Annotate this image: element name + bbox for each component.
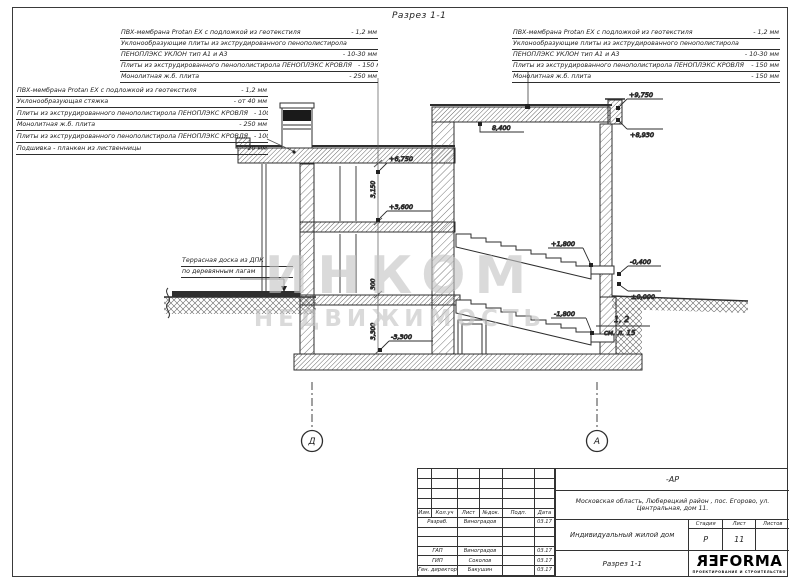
spec-block-top-right: ПВХ-мембрана Protan EX с подложкой из ге… — [512, 28, 780, 83]
terrace-deck — [172, 291, 300, 297]
spec-line: ПВХ-мембрана Protan EX с подложкой из ге… — [121, 28, 301, 38]
spec-block-top-left: ПВХ-мембрана Protan EX с подложкой из ге… — [120, 28, 378, 83]
row-date: 03.17 — [535, 547, 555, 557]
elev-parapet-top: +9,750 — [629, 91, 653, 99]
row-name: Бакушин — [458, 566, 503, 576]
row-role: ГАП — [418, 547, 458, 557]
stair-ref-number: 1, 2 — [614, 315, 629, 324]
stair-ref-sheet: см. л. 15 — [604, 329, 636, 337]
row-name: Соколов — [458, 556, 503, 566]
col-izm: Изм. — [418, 509, 432, 518]
right-roof-slab — [432, 107, 610, 122]
terrace-note-line2: по деревянным лагам — [181, 267, 293, 278]
elev-ceiling-right: 8,400 — [492, 124, 511, 132]
mark-roof-top: +8,930 — [616, 118, 663, 139]
terrace-note: Террасная доска из ДПК по деревянным лаг… — [181, 256, 293, 278]
stage-label: Стадия — [689, 520, 723, 528]
drawing-sheet: +6,750 +3,600 -3,300 8,400 +9,750 — [0, 0, 800, 584]
terrace-note-line1: Террасная доска из ДПК — [181, 256, 293, 267]
sheets-label: Листов — [756, 520, 789, 528]
elev-basement: -3,300 — [391, 333, 412, 341]
spec-line: ПЕНОПЛЭКС УКЛОН тип А1 и А3 — [513, 50, 619, 60]
elev-floor2: +3,600 — [389, 203, 413, 211]
stage-table: Стадия Лист Листов Р 11 — [689, 520, 789, 550]
spec-line: ПЕНОПЛЭКС УКЛОН тип А1 и А3 — [121, 50, 227, 60]
mark-floor2: +3,600 — [376, 203, 431, 222]
title-block-main: -АР Московская область, Люберецкий район… — [555, 469, 789, 576]
ground-slab — [300, 295, 460, 305]
stair-lower — [456, 300, 614, 345]
sheet-value: 11 — [723, 529, 757, 550]
row-name: Виноградов — [458, 518, 503, 528]
spec-line: ПВХ-мембрана Protan EX с подложкой из ге… — [17, 86, 197, 96]
title-block: Изм. Кол.уч Лист №док. Подп. Дата Разраб… — [417, 468, 788, 577]
mark-ceiling-right: 8,400 — [478, 122, 524, 132]
drawing-title: Разрез 1-1 — [392, 11, 446, 21]
building-structure — [236, 99, 642, 370]
row-date: 03.17 — [535, 556, 555, 566]
spec-line: ПВХ-мембрана Protan EX с подложкой из ге… — [513, 28, 693, 38]
project-code: -АР — [556, 469, 789, 491]
col-podp: Подп. — [503, 509, 535, 518]
row-date: 03.17 — [535, 566, 555, 576]
spec-line: Плиты из экструдированного пенополистиро… — [513, 61, 744, 71]
dim-floor2-height: 3,150 — [370, 181, 377, 198]
stair-upper — [456, 234, 614, 279]
mark-basement-floor: -3,300 — [378, 333, 433, 352]
elev-grade: -0,400 — [630, 258, 651, 266]
elev-landing-up: +1,800 — [551, 240, 575, 248]
spec-line: Плиты из экструдированного пенополистиро… — [17, 132, 248, 142]
stage-value: Р — [689, 529, 723, 550]
axis-label-left: Д — [307, 437, 315, 447]
terrain-left — [164, 288, 316, 318]
col-data: Дата — [535, 509, 555, 518]
chimney — [280, 103, 314, 148]
logo-text: REFORMA — [696, 554, 782, 569]
spec-line: Подшивка - планкен из лиственницы — [17, 144, 141, 154]
company-logo: REFORMA ПРОЕКТИРОВАНИЕ И СТРОИТЕЛЬСТВО — [689, 551, 789, 576]
col-koluch: Кол.уч — [432, 509, 458, 518]
dim-slab: 300 — [370, 278, 377, 290]
spec-line: Уклонообразующие плиты из экструдированн… — [121, 39, 347, 49]
sheet-title: Разрез 1-1 — [556, 551, 689, 576]
axes: Д А — [302, 382, 608, 452]
elev-landing-down: -1,800 — [554, 310, 575, 318]
floor2-slab — [300, 222, 455, 232]
basement-slab — [294, 354, 642, 370]
spec-line: Монолитная ж.б. плита — [121, 72, 199, 82]
elev-roof-top: +8,930 — [630, 131, 654, 139]
spec-line: Уклонообразующая стяжка — [17, 97, 108, 107]
row-role: ГИП — [418, 556, 458, 566]
spec-line: Монолитная ж.б. плита — [17, 120, 95, 130]
project-object: Индивидуальный жилой дом — [556, 520, 689, 550]
spec-line: Монолитная ж.б. плита — [513, 72, 591, 82]
mark-grade: -0,400 — [617, 258, 661, 276]
spec-block-left: ПВХ-мембрана Protan EX с подложкой из ге… — [16, 85, 268, 155]
spec-line: Уклонообразующие плиты из экструдированн… — [513, 39, 739, 49]
central-wall — [432, 122, 454, 354]
row-role: Разраб. — [418, 518, 458, 528]
axis-label-right: А — [593, 437, 600, 447]
spec-line: Плиты из экструдированного пенополистиро… — [17, 109, 248, 119]
project-address: Московская область, Люберецкий район , п… — [556, 491, 789, 520]
left-roof-slab — [238, 148, 455, 163]
elev-zero: ±0,000 — [631, 293, 655, 301]
sheets-value — [756, 529, 789, 550]
dim-basement-height: 3,300 — [370, 323, 377, 340]
title-block-signatures: Изм. Кол.уч Лист №док. Подп. Дата Разраб… — [418, 469, 555, 576]
mark-parapet-top: +9,750 — [616, 91, 663, 110]
col-list: Лист — [458, 509, 480, 518]
logo-subtitle: ПРОЕКТИРОВАНИЕ И СТРОИТЕЛЬСТВО — [692, 570, 786, 574]
spec-line: Плиты из экструдированного пенополистиро… — [121, 61, 352, 71]
sheet-label: Лист — [723, 520, 757, 528]
elev-roof-left: +6,750 — [389, 155, 413, 163]
left-wall — [300, 164, 314, 354]
vertical-dimensions: 3,150 300 3,300 — [370, 181, 377, 340]
row-role: Ген. директор — [418, 566, 458, 576]
col-dok: №док. — [480, 509, 503, 518]
row-date: 03.17 — [535, 518, 555, 528]
row-name: Виноградов — [458, 547, 503, 557]
basement-door — [458, 320, 486, 354]
terrain-right — [612, 296, 748, 354]
